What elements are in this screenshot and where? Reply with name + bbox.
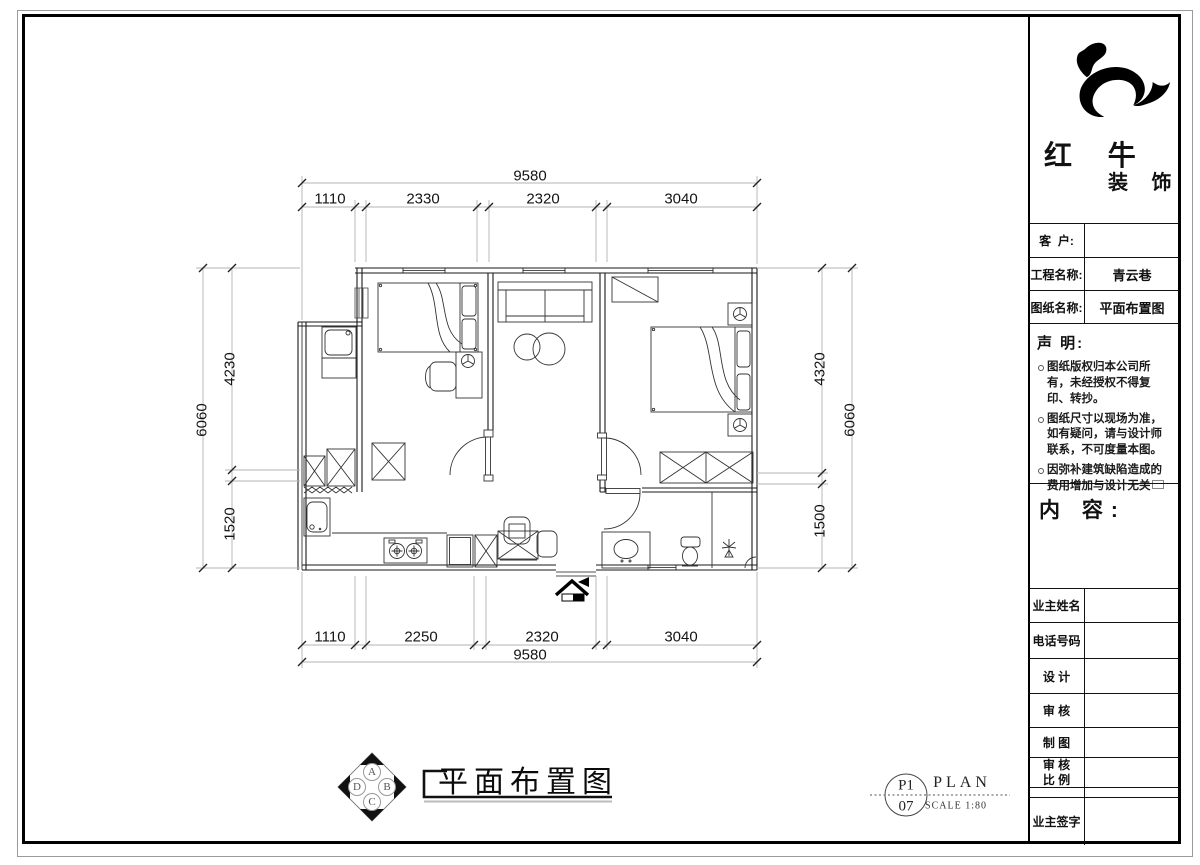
drawing-name-label: 图纸名称:: [1029, 291, 1085, 323]
dim-top-seg1: 1110: [314, 191, 345, 208]
entry-arrow-icon: [556, 577, 589, 601]
row-phone: 电话号码: [1029, 622, 1179, 658]
dim-top-seg2: 2330: [406, 191, 439, 208]
review-scale-label: 审 核 比 例: [1029, 758, 1085, 787]
signature-rows: 业主姓名 电话号码 设 计 审 核 制 图 审 核 比 例: [1029, 588, 1179, 845]
title-block-info: 客 户: 工程名称: 青云巷 图纸名称: 平面布置图: [1029, 223, 1179, 323]
client-value: [1085, 224, 1179, 257]
ac-symbol: [462, 355, 475, 368]
drawing-name-value: 平面布置图: [1085, 291, 1179, 323]
dim-bottom-seg3: 2320: [525, 629, 558, 646]
designer-value: [1085, 659, 1179, 693]
sheet-scale-label: SCALE 1:80: [925, 801, 987, 812]
plant: [722, 539, 736, 557]
chair: [430, 362, 456, 391]
scale-label: 比 例: [1043, 773, 1070, 787]
dim-top-seg3: 2320: [526, 191, 559, 208]
dim-top-seg4: 3040: [664, 191, 697, 208]
drafter-label: 制 图: [1029, 728, 1085, 757]
owner-sign-label: 业主签字: [1029, 798, 1085, 845]
kitchen-furniture: [332, 533, 497, 567]
drawing-caption: 平面布置图: [438, 757, 618, 801]
dim-top-overall: 9580: [513, 168, 546, 185]
dim-bottom-seg4: 3040: [664, 629, 697, 646]
wardrobe: [660, 452, 753, 483]
statement-text: 图纸尺寸以现场为准，如有疑问，请与设计师联系，不可度量本图。: [1047, 413, 1162, 457]
single-bed: [378, 283, 478, 352]
row-review-scale: 审 核 比 例: [1029, 757, 1179, 787]
dim-right-seg2: 1500: [812, 504, 829, 537]
phone-value: [1085, 623, 1179, 658]
drafter-value: [1085, 728, 1179, 757]
sink: [304, 498, 330, 536]
dimension-lines: [196, 176, 858, 668]
sheet-number-top: P1: [898, 778, 914, 795]
floor-plan-svg: [0, 0, 1200, 865]
spacer-label: [1029, 788, 1085, 797]
washing-machine: [322, 327, 356, 358]
bullet-icon: [1038, 468, 1044, 474]
review-scale-value: [1085, 758, 1179, 787]
gas-stove: [384, 538, 427, 563]
review-label: 审 核: [1043, 758, 1070, 772]
brand-logo-icon: [1052, 36, 1174, 128]
content-section: 内 容:: [1029, 483, 1179, 588]
walls: [298, 268, 757, 570]
wardrobe: [372, 443, 405, 480]
dim-right-overall: 6060: [842, 403, 859, 436]
project-value: 青云巷: [1085, 258, 1179, 290]
bedroom1-furniture: [372, 283, 482, 480]
owner-sign-value: [1085, 798, 1179, 845]
row-reviewer: 审 核: [1029, 693, 1179, 727]
owner-name-value: [1085, 589, 1179, 622]
bathroom-fixtures: [602, 492, 756, 568]
designer-label: 设 计: [1029, 659, 1085, 693]
toilet: [681, 537, 700, 566]
hatch-strip: [304, 487, 352, 493]
sheet-type-label: PLAN: [933, 774, 991, 792]
statement-item: 图纸尺寸以现场为准，如有疑问，请与设计师联系，不可度量本图。: [1037, 412, 1173, 460]
cabinet: [304, 449, 355, 486]
info-row-drawing: 图纸名称: 平面布置图: [1029, 290, 1179, 323]
corner-shelf: [612, 277, 658, 302]
doors: [450, 430, 641, 529]
dining-chair: [504, 517, 530, 544]
row-designer: 设 计: [1029, 658, 1179, 693]
wash-basin: [602, 532, 650, 568]
info-row-project: 工程名称: 青云巷: [1029, 257, 1179, 290]
desk: [456, 352, 482, 398]
compass-icon: [338, 753, 406, 821]
dim-bottom-seg2: 2250: [404, 629, 437, 646]
dining-chair: [537, 531, 557, 557]
spacer-value: [1085, 788, 1179, 797]
dim-left-seg1: 4230: [222, 352, 239, 385]
project-label: 工程名称:: [1029, 258, 1085, 290]
compass-letter-n: A: [368, 766, 376, 778]
dining-set: [498, 517, 557, 560]
dim-left-seg2: 1520: [222, 507, 239, 540]
living-furniture: [498, 282, 592, 365]
statement-section: 声 明: 图纸版权归本公司所有，未经授权不得复印、转抄。 图纸尺寸以现场为准，如…: [1029, 323, 1179, 483]
reviewer-label: 审 核: [1029, 694, 1085, 727]
drawing-sheet: 9580 1110 2330 2320 3040 1110 2250 2320 …: [0, 0, 1200, 865]
statement-heading: 声 明:: [1037, 332, 1173, 353]
info-row-client: 客 户:: [1029, 223, 1179, 257]
balcony-furniture: [304, 327, 356, 536]
cabinet: [447, 535, 497, 567]
windows: [302, 268, 713, 576]
compass-letter-s: C: [368, 796, 375, 808]
row-owner-sign: 业主签字: [1029, 797, 1179, 845]
dim-left-overall: 6060: [194, 403, 211, 436]
row-drafter: 制 图: [1029, 727, 1179, 757]
owner-name-label: 业主姓名: [1029, 589, 1085, 622]
dim-bottom-seg1: 1110: [314, 629, 345, 646]
statement-text: 图纸版权归本公司所有，未经授权不得复印、转抄。: [1047, 361, 1151, 405]
bullet-icon: [1038, 365, 1044, 371]
dim-bottom-overall: 9580: [513, 647, 546, 664]
sheet-number-bottom: 07: [899, 799, 914, 816]
reviewer-value: [1085, 694, 1179, 727]
phone-label: 电话号码: [1029, 623, 1085, 658]
row-owner-name: 业主姓名: [1029, 588, 1179, 622]
client-label: 客 户:: [1029, 224, 1085, 257]
row-spacer: [1029, 787, 1179, 797]
compass-letter-e: B: [383, 781, 390, 793]
brand-subname: 装 饰: [1108, 166, 1181, 195]
bullet-icon: [1038, 417, 1044, 423]
coffee-table: [514, 334, 540, 360]
compass-letter-w: D: [353, 781, 361, 793]
content-heading: 内 容:: [1039, 494, 1179, 524]
statement-item: 图纸版权归本公司所有，未经授权不得复印、转抄。: [1037, 360, 1173, 408]
dim-right-seg1: 4320: [812, 352, 829, 385]
